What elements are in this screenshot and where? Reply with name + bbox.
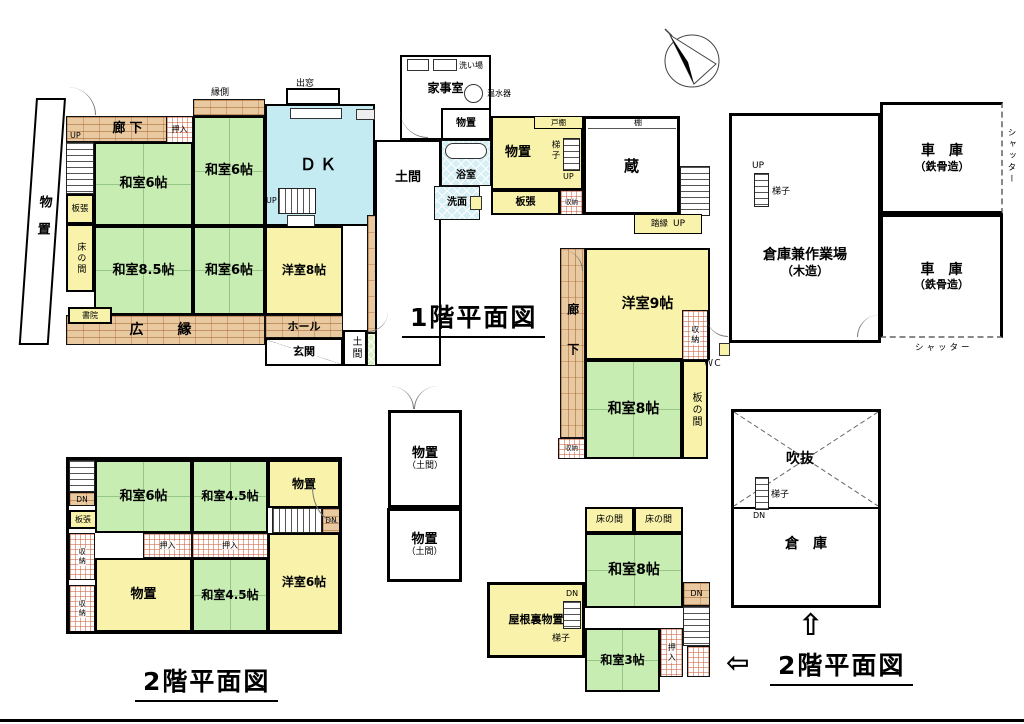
landing-2fl: DN — [69, 492, 95, 506]
room-itanoma: 板の間 — [682, 360, 708, 459]
up-label-ws: UP — [752, 161, 764, 171]
ladder-workshop — [754, 173, 769, 207]
room-itabari-2f: 板張 — [69, 510, 97, 529]
bay-window-label: 出窓 — [296, 76, 314, 89]
room-washitsu8-1f: 和室8帖 — [585, 360, 682, 459]
room-label: 土間 — [395, 170, 421, 186]
room-washitsu6-s: 和室6帖 — [193, 226, 265, 315]
room-label: 屋根裏物置 — [509, 613, 564, 626]
room-label: 洋室6帖 — [282, 575, 326, 589]
room-sublabel: （土間） — [406, 547, 442, 558]
floor2-title-right: 2階平面図 — [770, 646, 913, 686]
room-yoshitsu6-2f: 洋室6帖 — [268, 533, 340, 632]
genkan-entrance: 玄関 — [265, 338, 343, 366]
room-label: 和室8帖 — [608, 562, 660, 579]
washbasin-icon — [470, 196, 482, 210]
room-label: 家事室 — [427, 81, 463, 95]
closet-oshiire-2fl-b: 押入 — [192, 533, 268, 558]
room-label: 土間 — [349, 336, 361, 360]
room-washitsu6-2f: 和室6帖 — [95, 460, 192, 533]
room-label: ホール — [288, 320, 321, 333]
ladder-label-void: 梯子 — [771, 487, 789, 500]
closet-oshiire-2fm: 押入 — [660, 628, 683, 677]
void-divider — [731, 507, 881, 509]
room-label: 和室4.5帖 — [201, 489, 258, 503]
room-yoshitsu8: 洋室8帖 — [265, 226, 343, 315]
shelf-label: 棚 — [634, 117, 642, 128]
stairs-2fl-nw — [69, 460, 95, 492]
floor-plan-canvas: 物置 廊下 UP 押入 縁側 和室6帖 和室6帖 板張 床の間 和室8.5帖 和… — [0, 0, 1024, 724]
engawa-label: 縁側 — [211, 85, 229, 98]
ladder-label-ws: 梯子 — [772, 184, 790, 197]
arrow-left-icon: ⇦ — [726, 646, 749, 679]
room-label: 床の間 — [75, 242, 86, 275]
ladder-monooki — [563, 138, 580, 171]
cupboard-todana: 戸棚 — [534, 116, 583, 129]
room-label: 収納 — [565, 445, 578, 453]
compass-icon — [648, 20, 728, 102]
room-shoin: 書院 — [68, 307, 112, 324]
room-sublabel: （木造） — [781, 264, 829, 278]
room-label: 収納 — [565, 199, 578, 207]
dn-label-2: DN — [690, 589, 702, 599]
shutter-label-south: シャッター — [915, 341, 973, 353]
room-label: ＤＫ — [300, 155, 340, 174]
room-label: 和室3帖 — [600, 653, 644, 667]
room-label: 和室6帖 — [205, 263, 253, 279]
room-label: 和室6帖 — [119, 489, 167, 505]
closet-oshiire-north: 押入 — [166, 116, 193, 143]
room-tokonoma-2f-a: 床の間 — [585, 507, 634, 533]
room-label: 書院 — [82, 311, 98, 321]
ladder-yaneura — [563, 601, 581, 629]
room-sublabel: （鉄骨造） — [915, 160, 970, 173]
bathtub-icon — [445, 143, 487, 159]
dn-label-2fl: DN — [76, 495, 87, 504]
room-label: 車 庫 — [921, 262, 963, 279]
room-label: 玄関 — [291, 345, 317, 358]
room-washitsu45-b: 和室4.5帖 — [192, 558, 268, 632]
room-label: 広 縁 — [130, 322, 202, 339]
corridor-east: 廊下 — [560, 248, 585, 438]
room-label: 物置 — [411, 532, 437, 548]
araiba-label: 洗い場 — [459, 60, 483, 71]
room-label: 廊下 — [112, 121, 146, 137]
room-label: 廊下 — [565, 303, 579, 383]
dn-label-void: DN — [753, 511, 765, 520]
room-label: 物置 — [412, 446, 438, 462]
room-label: 倉 庫 — [785, 536, 827, 553]
doma-small: 土間 — [343, 330, 367, 366]
room-label: 収納 — [78, 600, 86, 618]
room-label: 和室8.5帖 — [112, 263, 174, 279]
room-storage-west: 物置 — [19, 98, 66, 345]
closet-yoshitsu9: 収納 — [682, 310, 708, 360]
room-label: 収納 — [78, 548, 86, 566]
hall: ホール — [265, 315, 343, 338]
room-label: 押入 — [172, 125, 188, 135]
room-monooki-n: 物置 — [441, 108, 491, 140]
wc-label-3: ＷＣ — [704, 356, 722, 369]
closet-2fm-se — [687, 646, 710, 677]
up-label-4: UP — [673, 219, 685, 230]
void-label: 吹抜 — [786, 448, 814, 468]
closet-oshiire-2fl-a: 押入 — [143, 533, 192, 558]
room-itabari-west: 板張 — [66, 194, 94, 224]
room-label: 蔵 — [624, 157, 639, 175]
bay-window — [286, 88, 340, 105]
room-washitsu8-2f: 和室8帖 — [585, 533, 683, 608]
landing-2fm: DN — [683, 582, 710, 606]
room-label: 踏縁 — [651, 219, 668, 229]
room-label: 和室6帖 — [119, 176, 167, 192]
room-label: 板張 — [71, 204, 88, 214]
room-label: 押入 — [160, 541, 176, 551]
room-washitsu45-a: 和室4.5帖 — [192, 460, 268, 533]
room-label: 物置 — [456, 118, 476, 130]
ladder-label-mid: 梯子 — [552, 631, 570, 644]
room-label: 物置 — [33, 195, 52, 249]
room-label: 床の間 — [645, 515, 672, 526]
room-label: 板張 — [516, 197, 536, 209]
room-label: 洋室9帖 — [622, 296, 674, 313]
room-label: 押入 — [222, 541, 238, 551]
up-label-2: UP — [266, 196, 277, 205]
water-heater-label: 温水器 — [487, 88, 511, 99]
room-label: 戸棚 — [551, 118, 566, 127]
double-door-arc-right — [414, 386, 438, 409]
room-label: 和室8帖 — [608, 401, 660, 418]
closet-itabari: 収納 — [560, 190, 583, 215]
stairs-2fm — [683, 606, 710, 646]
room-washitsu6-nw: 和室6帖 — [94, 142, 193, 226]
door-arc-entry-nw — [68, 87, 96, 115]
room-garage-south: 車 庫 （鉄骨造） — [880, 214, 1003, 338]
room-sublabel: （鉄骨造） — [914, 278, 969, 291]
kitchen-counter — [290, 108, 342, 119]
stairs-dk — [278, 188, 316, 214]
floor1-title: 1階平面図 — [402, 298, 545, 338]
sink-icon-2 — [433, 59, 457, 71]
water-heater-icon — [464, 84, 483, 103]
ladder-void — [755, 477, 769, 510]
room-label: 床の間 — [596, 515, 623, 526]
room-monooki-doma-1: 物置 （土間） — [388, 410, 462, 508]
room-monooki-2f-b: 物置 — [95, 558, 192, 632]
up-label-3: UP — [563, 172, 574, 181]
room-washitsu3: 和室3帖 — [585, 628, 660, 692]
room-sublabel: （土間） — [407, 461, 443, 472]
room-label: 和室6帖 — [205, 163, 253, 179]
room-label: 板張 — [75, 515, 91, 525]
stairs-northwest — [66, 142, 94, 194]
room-label: 浴室 — [456, 170, 476, 182]
room-label: 和室4.5帖 — [201, 588, 258, 602]
room-washitsu6-ne: 和室6帖 — [193, 116, 265, 226]
room-label: 押入 — [667, 643, 677, 663]
room-washitsu85: 和室8.5帖 — [94, 226, 193, 315]
room-monooki-doma-2: 物置 （土間） — [387, 508, 462, 582]
room-label: 物置 — [505, 145, 531, 161]
room-label: 倉庫兼作業場 — [763, 247, 847, 264]
arrow-up-icon: ⇧ — [798, 608, 823, 643]
shelf-line — [588, 128, 676, 129]
room-label: 車 庫 — [921, 143, 963, 160]
room-garage-north: 車 庫 （鉄骨造） — [880, 102, 1003, 214]
ladder-label-1: 梯子 — [549, 140, 561, 161]
bottom-border — [0, 719, 1024, 722]
room-itabari-e: 板張 — [491, 190, 560, 215]
room-workshop: 倉庫兼作業場 （木造） — [729, 113, 881, 343]
shutter-label-east: シャッター — [1005, 128, 1017, 186]
fumien-step: 踏縁 UP — [634, 214, 702, 234]
stove-icon — [356, 109, 375, 120]
closet-2fl-1: 収納 — [69, 533, 95, 580]
room-tokonoma-west: 床の間 — [66, 224, 94, 292]
room-kura: 蔵 — [583, 116, 680, 215]
dn-label-mid: DN — [566, 589, 578, 598]
room-label: 物置 — [130, 587, 156, 603]
sink-icon-1 — [407, 59, 429, 71]
stairs-kura — [680, 166, 710, 216]
hand-basin-icon — [719, 343, 730, 356]
room-label: 板の間 — [689, 392, 701, 428]
room-label: 洋室8帖 — [282, 263, 326, 277]
engawa-strip — [193, 99, 265, 116]
room-label: 収納 — [690, 325, 700, 345]
room-tokonoma-2f-b: 床の間 — [634, 507, 683, 533]
stairs-2fl-e — [272, 508, 322, 533]
closet-2fl-2: 収納 — [69, 585, 95, 632]
room-label: 洗面 — [447, 197, 467, 209]
closet-corridor-s: 収納 — [558, 438, 585, 459]
up-label-1: UP — [70, 131, 81, 140]
double-door-arc-left — [390, 386, 414, 409]
floor2-title-left: 2階平面図 — [135, 662, 278, 702]
